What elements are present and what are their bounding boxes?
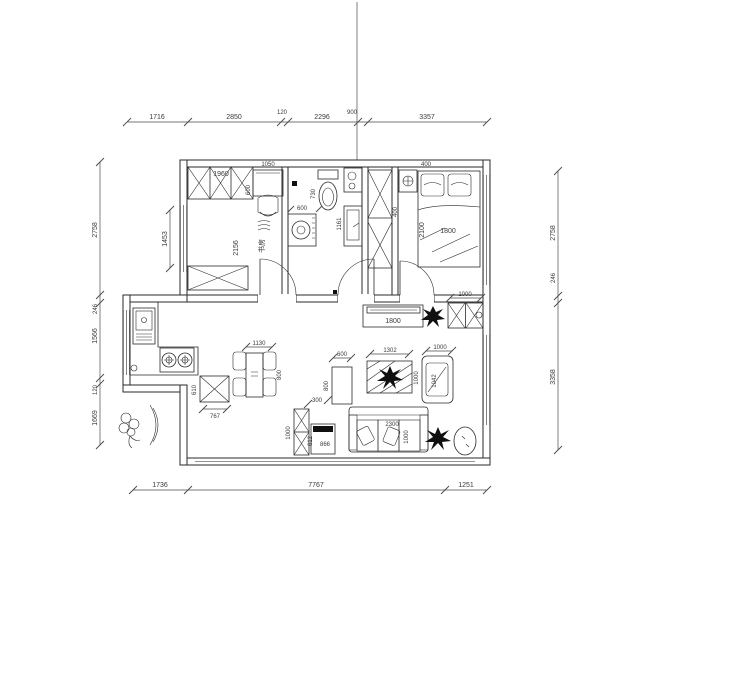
dim-label: 1302 [383,348,397,354]
double-bed [418,171,480,267]
dim-label: 1669 [92,410,99,426]
bathroom: 730 1161 600 [288,168,362,246]
window-kitchen-left [123,310,130,375]
window-study-left [180,205,187,272]
dim-label: 1566 [92,328,99,344]
dim-label: 1050 [261,162,275,168]
dim-label: 2758 [92,222,99,238]
dim-label: 2156 [233,240,240,256]
kitchen-counter [130,302,198,375]
dim-label: 600 [246,184,252,195]
plant-outside [119,405,158,448]
dim-label: 1716 [149,114,165,121]
dim-label: 1130 [253,341,267,347]
dining-set [233,352,276,397]
kitchen-cabinet [200,376,229,402]
dim-label: 2300 [385,422,399,428]
floor-plan-drawing: 1960 600 书房 1050 2156 1453 730 [0,0,740,700]
dimension-bottom: 1736 7767 1251 [129,482,491,494]
dim-label: 612 [308,435,314,446]
dim-label: 3357 [419,114,435,121]
side-cabinet [332,367,352,404]
dim-label: 600 [297,206,308,212]
dim-label: 1000 [458,292,472,298]
vanity [344,206,362,246]
dim-label: 767 [210,414,221,420]
dim-label: 120 [93,384,99,395]
dim-label: 1042 [432,374,438,388]
dim-label: 400 [421,162,432,168]
stove [160,348,194,372]
kitchen-sink [133,308,155,344]
window-living-right [483,335,490,425]
dim-label: 3358 [550,369,557,385]
dim-label: 246 [551,272,557,283]
dim-label: 1161 [337,217,343,231]
dim-label: 1453 [162,231,169,247]
floor-plan-canvas: 1960 600 书房 1050 2156 1453 730 [0,0,740,700]
dim-label: 1960 [213,171,229,178]
dimension-right: 2758 246 3358 [550,167,562,454]
dim-label: 800 [277,369,283,380]
washing-machine [288,214,316,246]
dim-label: 120 [277,110,288,116]
door-study [258,259,296,303]
desk [253,170,283,196]
dim-label: 2758 [550,225,557,241]
dim-label: 300 [312,398,323,404]
dim-label: 246 [93,303,99,314]
dimension-top: 1716 2850 120 2296 900 3357 [123,110,491,126]
nightstand [399,170,417,192]
closet [368,170,392,268]
dim-label: 7767 [308,482,324,489]
dim-label: 1000 [433,345,447,351]
dim-label: 900 [347,110,358,116]
dim-label: 730 [311,188,317,199]
dim-label: 2850 [226,114,242,121]
desk-chair [258,195,278,216]
toilet [318,170,338,210]
bedroom: 400 2100 1800 [399,162,480,267]
dim-label: 400 [393,206,399,217]
window-bedroom-right [483,175,490,285]
hall-cabinet [294,409,309,455]
dimension-left: 2758 246 1566 120 1669 [92,158,104,449]
dim-label: 1800 [440,228,456,235]
plant-sofa [425,427,451,450]
dim-label: 2296 [314,114,330,121]
dim-label: 2100 [419,222,426,238]
floor-drain [131,365,137,371]
dim-label: 1000 [404,430,410,444]
small-table [311,424,335,454]
shoe-cabinet [448,303,483,328]
column-dot [292,181,297,186]
dim-label: 600 [337,352,348,358]
dim-label: 1736 [152,482,168,489]
dim-label: 1251 [458,482,474,489]
dim-label: 1000 [414,371,420,385]
living-room: 1302 1000 1000 1042 600 800 300 1000 [286,345,476,455]
dim-label: 610 [192,384,198,395]
sofa [349,407,428,452]
books-icon [258,221,270,231]
pouf [454,427,476,455]
dim-label: 1800 [385,318,401,325]
kitchen [130,302,198,375]
dim-label: 1000 [286,426,292,440]
plant-entry [421,306,445,327]
coffee-table-rug [367,361,412,393]
basin-counter [344,168,362,192]
dining-table [246,353,263,397]
room-label-study: 书房 [257,239,266,253]
tatami-bed [188,266,248,290]
dim-label: 866 [320,442,331,448]
window-living-bottom [195,458,475,465]
dim-label: 800 [324,380,330,391]
